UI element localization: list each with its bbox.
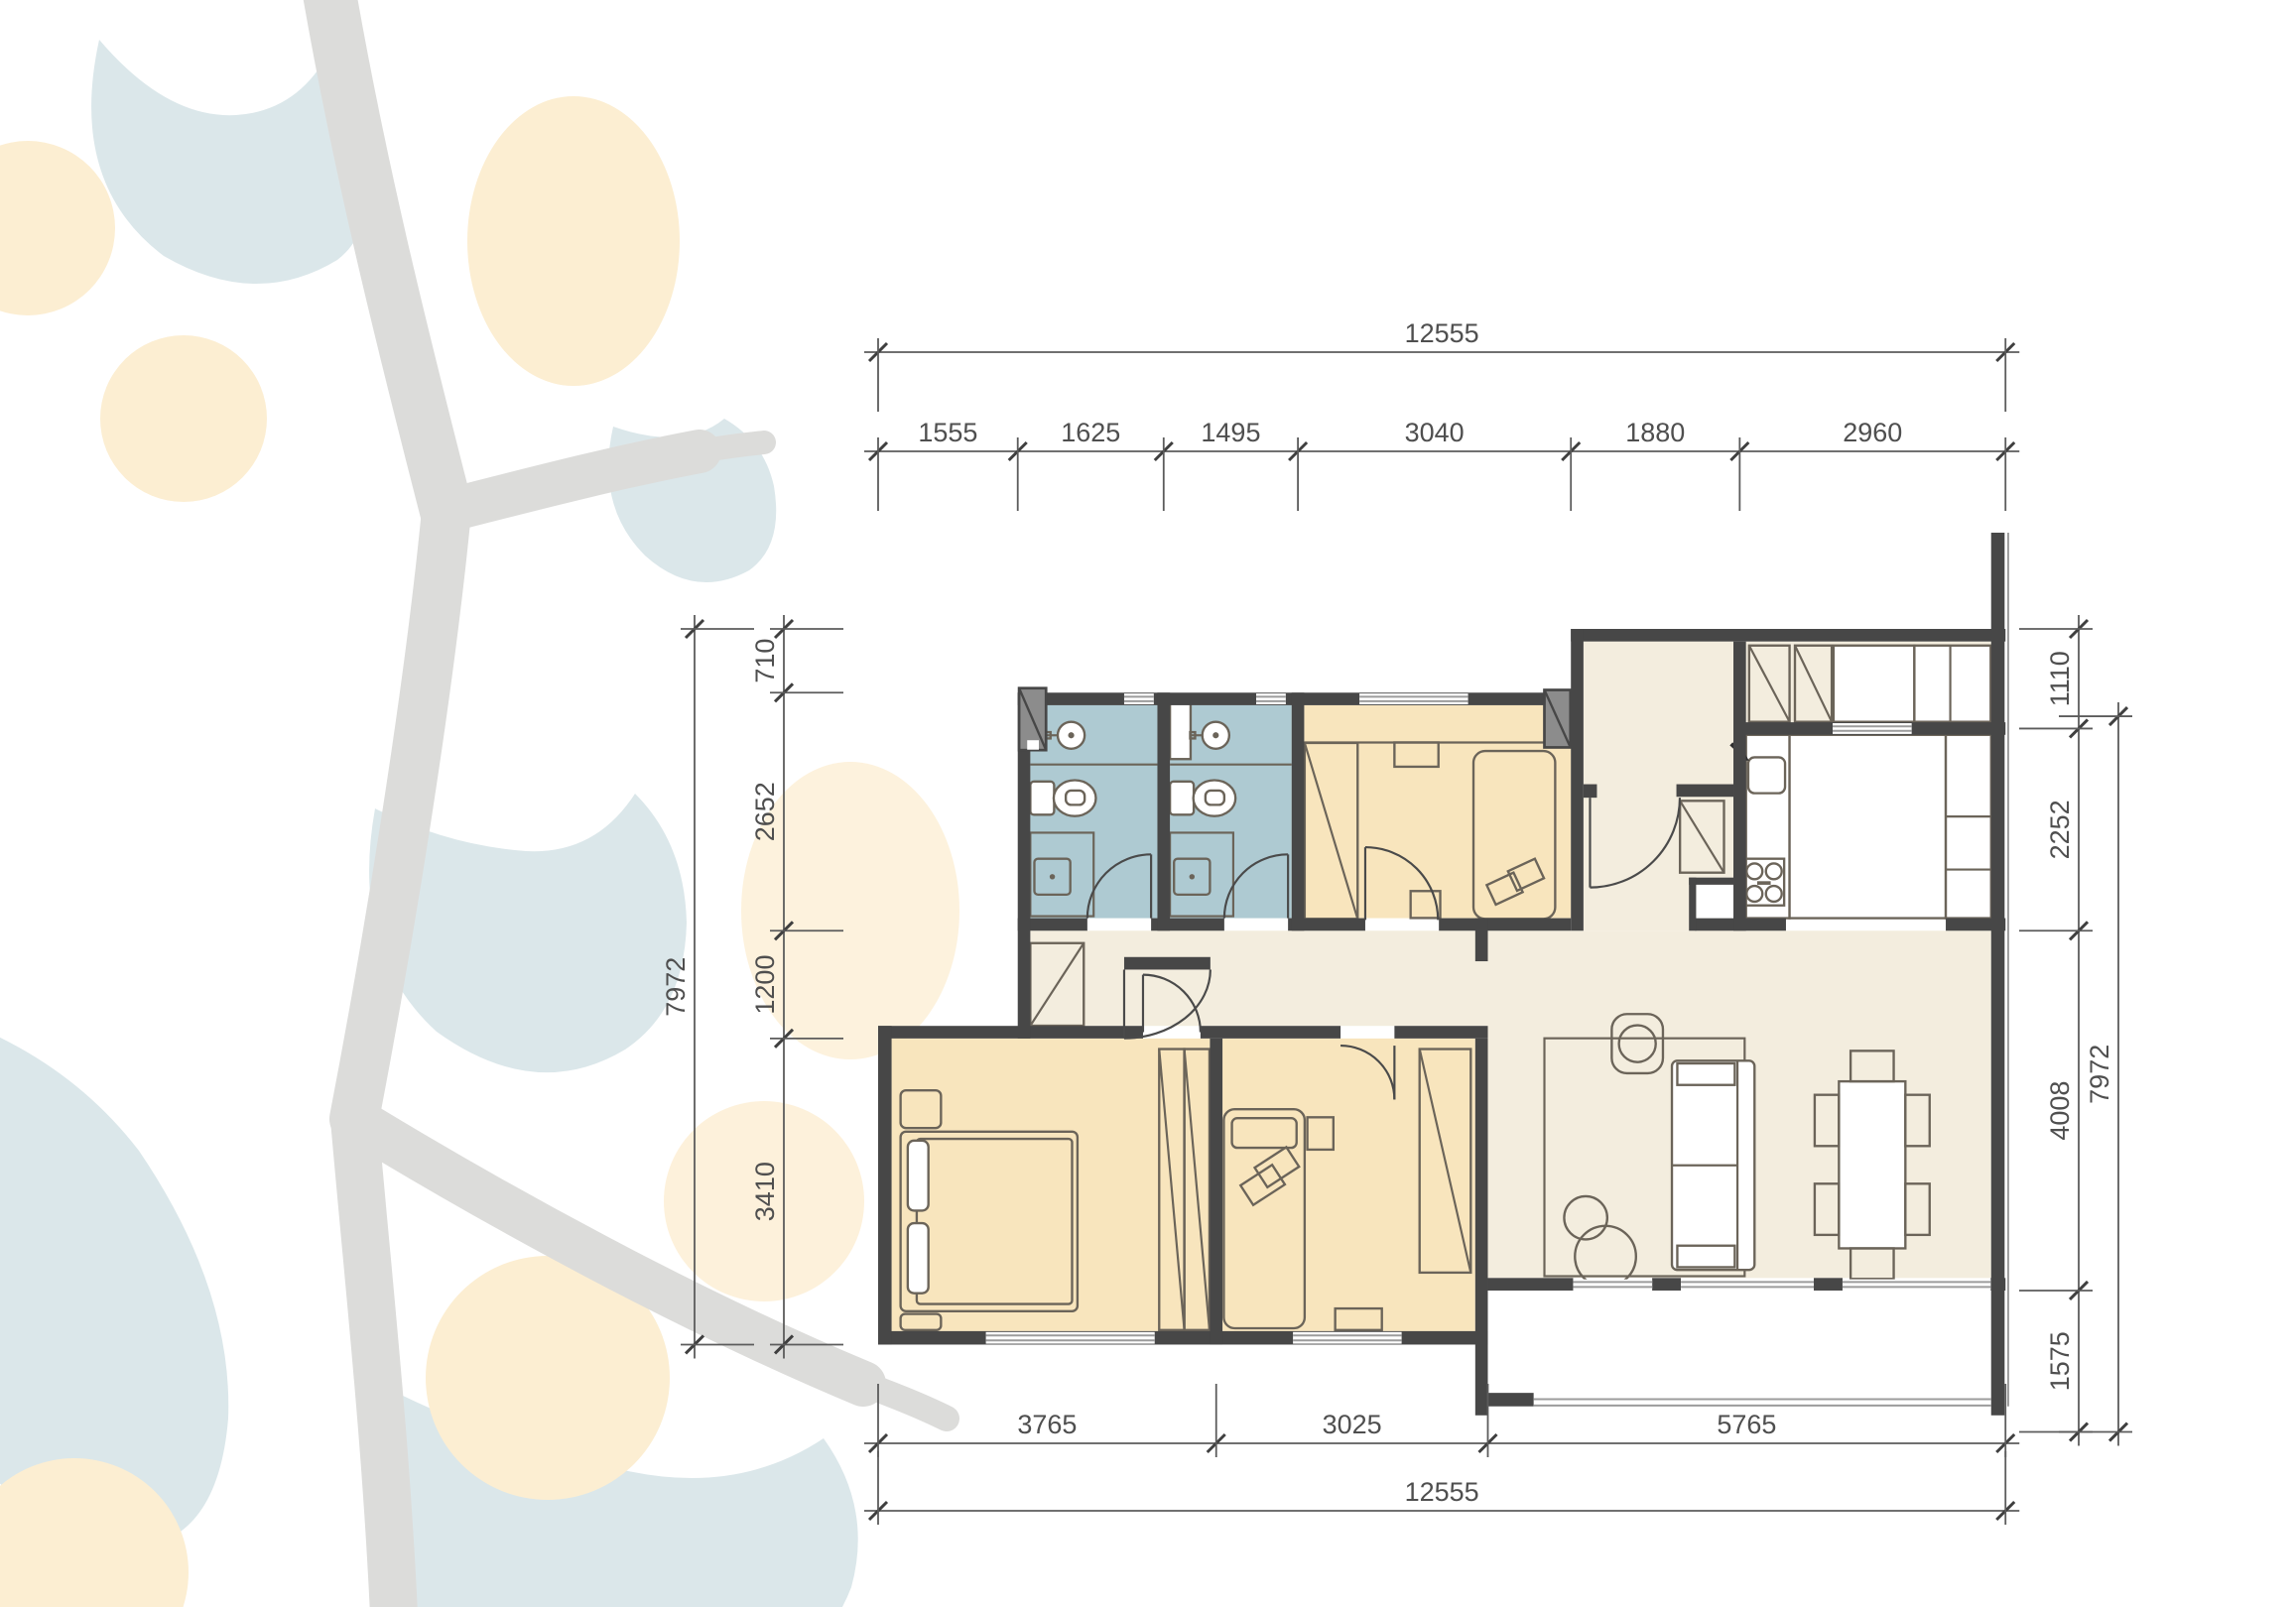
window-icon [986, 1332, 1155, 1344]
sliding-door-icon [1681, 1280, 1814, 1290]
dimension-label: 1110 [2045, 651, 2075, 706]
window-icon [1124, 693, 1154, 704]
kitchen-tall-units [1946, 735, 1991, 919]
dimension-label: 7972 [661, 957, 691, 1017]
shaft-nook-interior [1696, 885, 1733, 919]
dimension-label: 3025 [1323, 1410, 1382, 1439]
entry-stub-wall [1677, 785, 1733, 798]
sofa [1672, 1060, 1754, 1270]
window-icon [1833, 723, 1912, 734]
window-icon [1359, 693, 1468, 704]
shaft-icon [1019, 688, 1046, 750]
floor-plan-page: 1255515551625149530401880296037653025576… [0, 0, 2296, 1607]
dimension-label: 3410 [750, 1162, 780, 1221]
dimension-label: 710 [750, 639, 780, 683]
party-wall-fin [1991, 533, 2005, 629]
toilet-icon [1170, 780, 1235, 815]
dimension-label: 12555 [1405, 318, 1479, 348]
balcony-floor [1487, 1291, 1990, 1407]
dimension-label: 1200 [750, 955, 780, 1015]
sliding-door-icon [1573, 1280, 1652, 1290]
corridor-floor [1030, 930, 1487, 1026]
dimension-label: 3040 [1405, 418, 1465, 447]
dimension-label: 5765 [1717, 1410, 1776, 1439]
dimension-label: 1555 [918, 418, 977, 447]
dimension-label: 3765 [1017, 1410, 1077, 1439]
bedroom-2-floor [1222, 1039, 1475, 1331]
sliding-door-icon [1843, 1280, 1990, 1290]
dimension-label: 1880 [1625, 418, 1685, 447]
dimension-label: 2652 [750, 782, 780, 841]
corridor-stub-wall [1124, 957, 1211, 970]
dimension-label: 2960 [1843, 418, 1902, 447]
dimension-label: 1495 [1201, 418, 1260, 447]
dimension-label: 2252 [2045, 800, 2075, 859]
dimension-label: 4008 [2045, 1081, 2075, 1141]
bedroom-3-floor [1304, 705, 1571, 919]
balcony-parapet-block [1487, 1393, 1533, 1407]
plan-mm-space [878, 533, 2008, 1416]
dimension-label: 1625 [1061, 418, 1120, 447]
shaft-icon [1545, 690, 1571, 748]
dimension-label: 1575 [2045, 1331, 2075, 1391]
dimension-label: 12555 [1405, 1477, 1479, 1507]
entry-door-jamb [1584, 785, 1597, 799]
window-icon [1293, 1332, 1402, 1344]
floor-plan: 1255515551625149530401880296037653025576… [0, 0, 2296, 1607]
kitchen-island [1790, 735, 1946, 919]
dimension-label: 7972 [2085, 1045, 2114, 1104]
toilet-icon [1030, 780, 1095, 815]
shaft-nook-wall [1689, 878, 1696, 931]
window-icon [1256, 693, 1286, 704]
